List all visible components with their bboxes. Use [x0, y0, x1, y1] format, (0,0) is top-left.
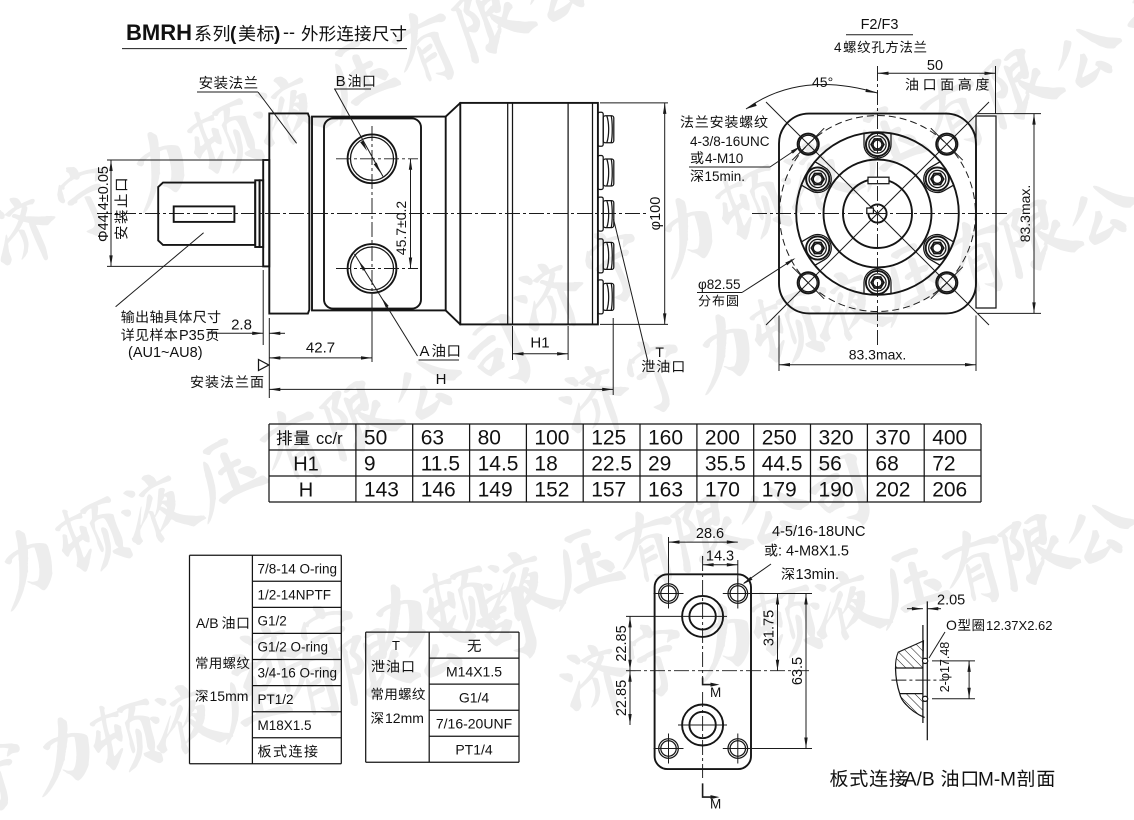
svg-text:7/16-20UNF: 7/16-20UNF: [436, 715, 512, 731]
svg-text:206: 206: [932, 479, 967, 502]
svg-text:22.5: 22.5: [591, 453, 632, 476]
svg-text:4: 4: [834, 40, 842, 55]
svg-text:12.37X2.62: 12.37X2.62: [986, 618, 1053, 633]
svg-text:2-φ17.48: 2-φ17.48: [938, 642, 952, 693]
svg-text:7/8-14 O-ring: 7/8-14 O-ring: [258, 561, 338, 576]
svg-text:80: 80: [478, 427, 501, 450]
svg-text:4-M10: 4-M10: [705, 151, 743, 166]
svg-text:146: 146: [421, 479, 456, 502]
svg-text:179: 179: [762, 479, 797, 502]
svg-text:190: 190: [819, 479, 854, 502]
svg-text:): ): [274, 24, 280, 45]
svg-text:28.6: 28.6: [696, 526, 724, 542]
svg-text:63.5: 63.5: [790, 657, 806, 685]
svg-text:31.75: 31.75: [761, 610, 777, 646]
svg-text:18: 18: [534, 453, 557, 476]
svg-text:(: (: [230, 24, 237, 45]
svg-text:--: --: [283, 22, 295, 42]
svg-text:2.8: 2.8: [231, 317, 252, 334]
svg-text:63: 63: [421, 427, 444, 450]
svg-text:M: M: [710, 685, 721, 700]
svg-text:A/B: A/B: [904, 770, 935, 791]
svg-text:G1/2: G1/2: [258, 614, 287, 629]
svg-text:φ100: φ100: [648, 197, 664, 231]
svg-text:cc/r: cc/r: [316, 430, 343, 448]
svg-text:F2/F3: F2/F3: [861, 17, 899, 33]
svg-text:50: 50: [364, 427, 387, 450]
svg-text:68: 68: [875, 453, 898, 476]
svg-text:M14X1.5: M14X1.5: [446, 663, 502, 679]
svg-text:T: T: [655, 344, 664, 360]
svg-text:9: 9: [364, 453, 376, 476]
svg-text:14.3: 14.3: [706, 549, 734, 565]
svg-text:M18X1.5: M18X1.5: [258, 718, 312, 733]
svg-text:11.5: 11.5: [421, 453, 460, 476]
svg-text:G1/4: G1/4: [459, 689, 490, 705]
svg-text:45.7±0.2: 45.7±0.2: [393, 201, 409, 256]
svg-text:: 4-M8X1.5: : 4-M8X1.5: [778, 543, 849, 559]
svg-text:149: 149: [478, 479, 513, 502]
svg-text:163: 163: [648, 479, 683, 502]
svg-text:56: 56: [819, 453, 842, 476]
svg-text:170: 170: [705, 479, 740, 502]
svg-text:P35: P35: [179, 328, 205, 344]
svg-text:G1/2 O-ring: G1/2 O-ring: [258, 640, 329, 655]
svg-text:M-M: M-M: [978, 770, 1016, 791]
svg-text:160: 160: [648, 427, 683, 450]
svg-text:200: 200: [705, 427, 740, 450]
svg-text:29: 29: [648, 453, 671, 476]
svg-text:13min.: 13min.: [796, 567, 840, 583]
svg-text:152: 152: [534, 479, 569, 502]
svg-text:B: B: [336, 73, 346, 90]
svg-text:35.5: 35.5: [705, 453, 746, 476]
svg-text:T: T: [392, 638, 400, 653]
svg-text:400: 400: [932, 427, 967, 450]
svg-text:143: 143: [364, 479, 399, 502]
svg-text:PT1/2: PT1/2: [258, 692, 294, 707]
svg-text:44.5: 44.5: [762, 453, 803, 476]
svg-text:φ82.55: φ82.55: [698, 277, 741, 292]
svg-text:72: 72: [932, 453, 955, 476]
svg-text:O: O: [946, 617, 957, 633]
svg-text:H1: H1: [293, 454, 319, 476]
svg-text:250: 250: [762, 427, 797, 450]
svg-text:320: 320: [819, 427, 854, 450]
svg-text:15min.: 15min.: [705, 169, 746, 184]
svg-text:22.85: 22.85: [614, 680, 630, 716]
svg-text:4-3/8-16UNC: 4-3/8-16UNC: [690, 134, 770, 149]
svg-text:A/B: A/B: [196, 615, 219, 631]
svg-text:A: A: [420, 343, 430, 360]
svg-text:125: 125: [591, 427, 626, 450]
svg-text:1/2-14NPTF: 1/2-14NPTF: [258, 588, 332, 603]
svg-text:H1: H1: [530, 335, 549, 352]
svg-text:45°: 45°: [812, 74, 833, 90]
svg-text:PT1/4: PT1/4: [455, 741, 493, 757]
svg-text:Φ44.4±0.05: Φ44.4±0.05: [96, 166, 112, 242]
svg-text:370: 370: [875, 427, 910, 450]
svg-text:157: 157: [591, 479, 626, 502]
svg-text:M: M: [710, 797, 721, 812]
svg-text:(AU1~AU8): (AU1~AU8): [128, 345, 203, 361]
svg-text:83.3max.: 83.3max.: [849, 347, 907, 363]
svg-text:3/4-16 O-ring: 3/4-16 O-ring: [258, 666, 338, 681]
svg-text:83.3max.: 83.3max.: [1017, 185, 1033, 243]
svg-text:42.7: 42.7: [306, 340, 335, 357]
svg-text:50: 50: [927, 58, 943, 74]
svg-text:H: H: [436, 371, 447, 388]
svg-text:H: H: [299, 480, 313, 502]
svg-text:4-5/16-18UNC: 4-5/16-18UNC: [772, 524, 866, 540]
svg-text:15mm: 15mm: [210, 688, 249, 704]
svg-text:12mm: 12mm: [385, 710, 424, 726]
svg-text:14.5: 14.5: [478, 453, 519, 476]
svg-text:2.05: 2.05: [937, 593, 965, 609]
svg-text:22.85: 22.85: [614, 625, 630, 661]
svg-text:100: 100: [534, 427, 569, 450]
svg-text:BMRH: BMRH: [126, 20, 192, 45]
svg-text:202: 202: [875, 479, 910, 502]
